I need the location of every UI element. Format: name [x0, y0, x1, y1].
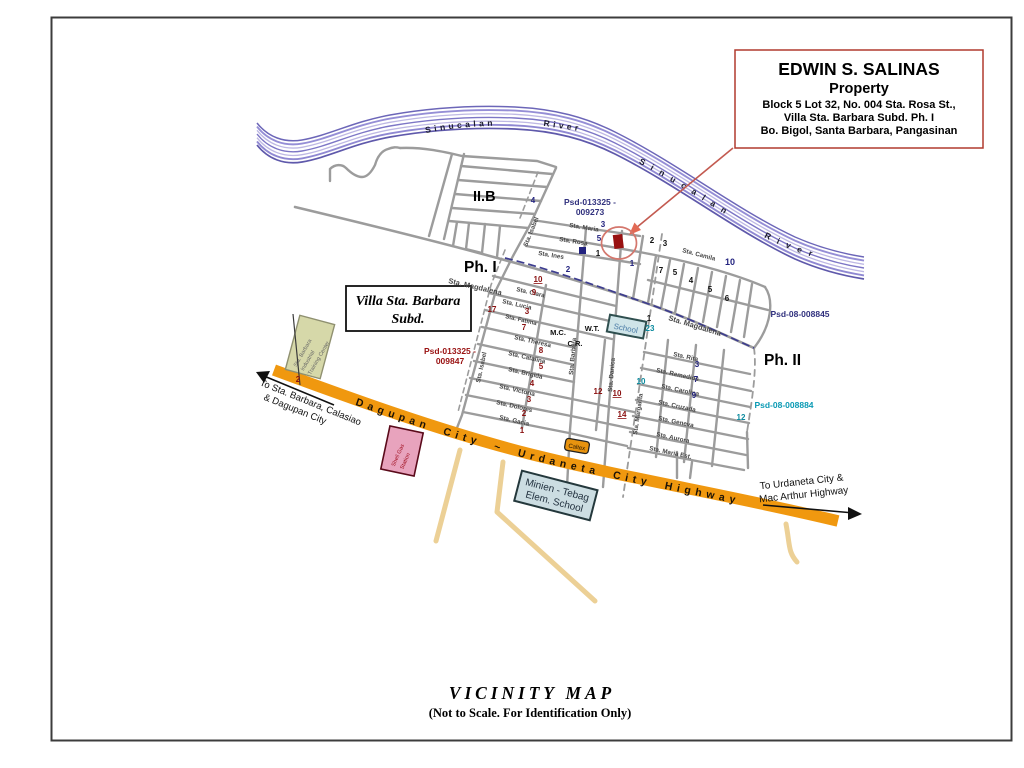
svg-text:9: 9	[692, 391, 697, 400]
svg-text:2: 2	[296, 375, 301, 384]
svg-text:3: 3	[695, 360, 700, 369]
svg-text:VICINITY MAP: VICINITY MAP	[449, 683, 615, 703]
svg-text:23: 23	[646, 324, 655, 333]
svg-text:4: 4	[531, 196, 536, 205]
svg-text:3: 3	[601, 220, 606, 229]
svg-text:9: 9	[532, 288, 537, 297]
svg-text:17: 17	[488, 305, 497, 314]
svg-text:1: 1	[596, 249, 601, 258]
svg-text:Ph. I: Ph. I	[464, 259, 497, 276]
svg-text:M.C.: M.C.	[550, 328, 566, 337]
svg-text:Ph. II: Ph. II	[764, 352, 801, 369]
svg-text:7: 7	[522, 323, 527, 332]
svg-text:(Not to Scale. For Identificat: (Not to Scale. For Identification Only)	[429, 706, 632, 720]
svg-text:10: 10	[613, 389, 622, 398]
svg-text:14: 14	[618, 410, 627, 419]
svg-text:5: 5	[539, 362, 544, 371]
svg-text:7: 7	[659, 266, 664, 275]
svg-text:5: 5	[597, 234, 602, 243]
svg-text:10: 10	[534, 275, 543, 284]
svg-text:8: 8	[539, 346, 544, 355]
svg-text:1: 1	[520, 426, 525, 435]
svg-text:1: 1	[630, 259, 635, 268]
svg-text:3: 3	[525, 307, 530, 316]
svg-text:Property: Property	[829, 81, 889, 97]
svg-text:5: 5	[673, 268, 678, 277]
svg-text:2: 2	[566, 265, 571, 274]
svg-text:3: 3	[663, 239, 668, 248]
svg-text:Villa Sta. Barbara: Villa Sta. Barbara	[356, 294, 461, 309]
svg-text:12: 12	[737, 413, 746, 422]
svg-text:Subd.: Subd.	[391, 312, 424, 327]
svg-text:6: 6	[725, 294, 730, 303]
svg-text:Psd-013325 -: Psd-013325 -	[564, 197, 616, 207]
svg-text:12: 12	[594, 387, 603, 396]
svg-text:009273: 009273	[576, 207, 605, 217]
svg-text:10: 10	[637, 377, 646, 386]
svg-text:Psd-013325 -: Psd-013325 -	[424, 346, 476, 356]
svg-text:Bo. Bigol, Santa Barbara, Pang: Bo. Bigol, Santa Barbara, Pangasinan	[761, 125, 958, 137]
svg-text:4: 4	[689, 276, 694, 285]
svg-text:C.R.: C.R.	[568, 339, 583, 348]
svg-text:4: 4	[530, 379, 535, 388]
svg-text:EDWIN S. SALINAS: EDWIN S. SALINAS	[778, 59, 939, 79]
svg-text:10: 10	[725, 257, 735, 267]
svg-text:Psd-08-008845: Psd-08-008845	[770, 309, 829, 319]
svg-text:2: 2	[522, 409, 527, 418]
svg-text:Psd-08-008884: Psd-08-008884	[754, 400, 813, 410]
svg-text:II.B: II.B	[473, 189, 496, 205]
svg-text:W.T.: W.T.	[585, 324, 600, 333]
svg-text:009847: 009847	[436, 356, 465, 366]
svg-text:2: 2	[650, 236, 655, 245]
svg-text:3: 3	[527, 395, 532, 404]
svg-text:7: 7	[694, 375, 699, 384]
svg-text:5: 5	[708, 285, 713, 294]
svg-text:Villa Sta. Barbara Subd. Ph. I: Villa Sta. Barbara Subd. Ph. I	[784, 112, 934, 124]
svg-text:1: 1	[647, 314, 652, 323]
svg-text:Block 5 Lot 32, No. 004 Sta. R: Block 5 Lot 32, No. 004 Sta. Rosa St.,	[762, 99, 955, 111]
